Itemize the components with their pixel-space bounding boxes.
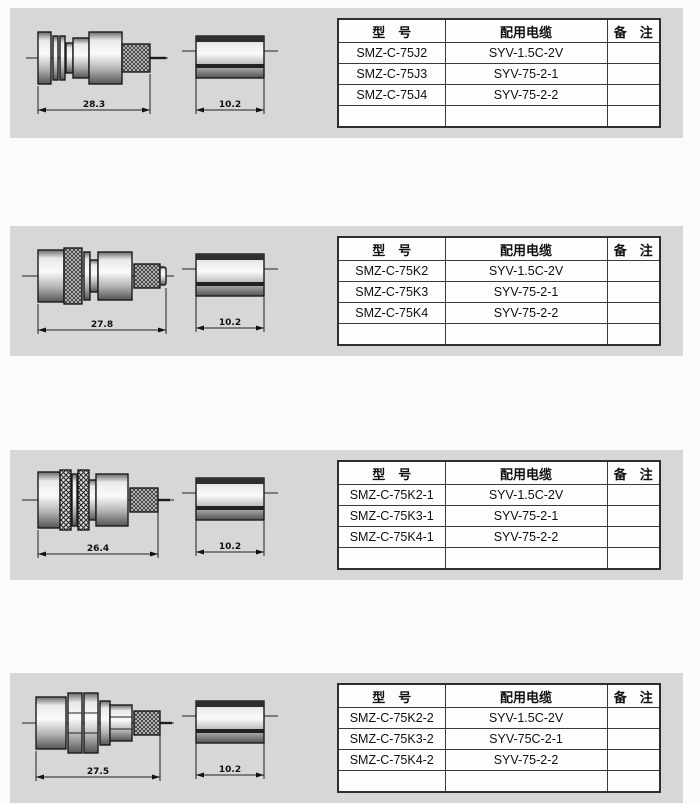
remark-header: 备 注: [607, 461, 660, 485]
table-row: SMZ-C-75K3-2 SYV-75C-2-1: [338, 729, 660, 750]
table-row: SMZ-C-75K2-2 SYV-1.5C-2V: [338, 708, 660, 729]
dimension-10-2: 10.2: [196, 296, 264, 332]
model-cell: [338, 771, 445, 793]
remark-cell: [607, 729, 660, 750]
dimension-label: 10.2: [219, 765, 241, 775]
table-row: SMZ-C-75J4 SYV-75-2-2: [338, 85, 660, 106]
table-row: SMZ-C-75K2 SYV-1.5C-2V: [338, 261, 660, 282]
spec-table-1: 型 号 配用电缆 备 注 SMZ-C-75J2 SYV-1.5C-2V SMZ-…: [337, 18, 661, 128]
dimension-label: 28.3: [83, 100, 105, 110]
remark-header: 备 注: [607, 19, 660, 43]
table-row: SMZ-C-75K4-2 SYV-75-2-2: [338, 750, 660, 771]
model-cell: SMZ-C-75K4-2: [338, 750, 445, 771]
knurl-crimp-section: [134, 264, 160, 288]
dimension-label: 27.5: [87, 767, 109, 777]
model-cell: SMZ-C-75K2: [338, 261, 445, 282]
model-header: 型 号: [338, 684, 445, 708]
dimension-label: 10.2: [219, 542, 241, 552]
cable-cell: SYV-75C-2-1: [445, 729, 607, 750]
cable-cell: SYV-75-2-1: [445, 282, 607, 303]
table-row: SMZ-C-75K4-1 SYV-75-2-2: [338, 527, 660, 548]
remark-cell: [607, 85, 660, 106]
dimension-label: 10.2: [219, 318, 241, 328]
table-row: SMZ-C-75J3 SYV-75-2-1: [338, 64, 660, 85]
remark-cell: [607, 64, 660, 85]
table-header-row: 型 号 配用电缆 备 注: [338, 19, 660, 43]
cable-cell: SYV-75-2-1: [445, 506, 607, 527]
spec-table-3: 型 号 配用电缆 备 注 SMZ-C-75K2-1 SYV-1.5C-2V SM…: [337, 460, 661, 570]
model-cell: SMZ-C-75J3: [338, 64, 445, 85]
cable-cell: SYV-75-2-2: [445, 750, 607, 771]
table-row: SMZ-C-75K3 SYV-75-2-1: [338, 282, 660, 303]
remark-cell: [607, 106, 660, 128]
datasheet-page: { "colors": { "page_bg": "#fbfbfb", "pan…: [0, 0, 700, 804]
table-row-empty: [338, 106, 660, 128]
cable-header: 配用电缆: [445, 19, 607, 43]
cable-cell: SYV-1.5C-2V: [445, 261, 607, 282]
cable-cell: SYV-75-2-2: [445, 85, 607, 106]
model-cell: SMZ-C-75K2-2: [338, 708, 445, 729]
end-cap: [160, 267, 166, 285]
table-row: SMZ-C-75K2-1 SYV-1.5C-2V: [338, 485, 660, 506]
remark-cell: [607, 303, 660, 324]
cable-cell: [445, 324, 607, 346]
cable-cell: SYV-1.5C-2V: [445, 708, 607, 729]
connector-body: [36, 693, 132, 753]
remark-cell: [607, 506, 660, 527]
dimension-label: 10.2: [219, 100, 241, 110]
section-2-panel: 27.8 10.2 型 号 配用电缆 备 注 SMZ-C-75K2 SYV-1.…: [10, 226, 683, 356]
sleeve-body: [196, 701, 264, 743]
model-cell: SMZ-C-75K3-2: [338, 729, 445, 750]
cable-cell: SYV-75-2-1: [445, 64, 607, 85]
model-cell: SMZ-C-75K4: [338, 303, 445, 324]
table-row: SMZ-C-75J2 SYV-1.5C-2V: [338, 43, 660, 64]
sleeve-drawing-3: 10.2: [180, 460, 280, 570]
connector-body: [38, 470, 128, 530]
remark-cell: [607, 548, 660, 570]
cable-header: 配用电缆: [445, 237, 607, 261]
spec-table-2: 型 号 配用电缆 备 注 SMZ-C-75K2 SYV-1.5C-2V SMZ-…: [337, 236, 661, 346]
model-cell: SMZ-C-75J2: [338, 43, 445, 64]
connector-drawing-2: 27.8: [16, 236, 180, 346]
dimension-10-2: 10.2: [196, 743, 264, 779]
remark-cell: [607, 324, 660, 346]
section-3-panel: 26.4 10.2 型 号 配用电缆 备 注 SMZ-C-75K2-1 SYV-…: [10, 450, 683, 580]
connector-drawing-4: 27.5: [16, 683, 180, 793]
remark-cell: [607, 771, 660, 793]
model-cell: [338, 548, 445, 570]
model-cell: [338, 324, 445, 346]
model-cell: SMZ-C-75K3: [338, 282, 445, 303]
table-row: SMZ-C-75K4 SYV-75-2-2: [338, 303, 660, 324]
table-header-row: 型 号 配用电缆 备 注: [338, 684, 660, 708]
remark-cell: [607, 261, 660, 282]
cable-cell: SYV-75-2-2: [445, 527, 607, 548]
table-header-row: 型 号 配用电缆 备 注: [338, 461, 660, 485]
spec-table-4: 型 号 配用电缆 备 注 SMZ-C-75K2-2 SYV-1.5C-2V SM…: [337, 683, 661, 793]
cable-cell: SYV-1.5C-2V: [445, 43, 607, 64]
knurl-crimp-section: [130, 488, 158, 512]
cable-cell: SYV-75-2-2: [445, 303, 607, 324]
sleeve-drawing-4: 10.2: [180, 683, 280, 793]
model-header: 型 号: [338, 19, 445, 43]
model-header: 型 号: [338, 461, 445, 485]
sleeve-drawing-1: 10.2: [180, 18, 280, 128]
remark-cell: [607, 750, 660, 771]
dimension-10-2: 10.2: [196, 520, 264, 556]
remark-header: 备 注: [607, 237, 660, 261]
dimension-label: 27.8: [91, 320, 113, 330]
cable-header: 配用电缆: [445, 684, 607, 708]
table-row-empty: [338, 324, 660, 346]
model-cell: SMZ-C-75K4-1: [338, 527, 445, 548]
table-row: SMZ-C-75K3-1 SYV-75-2-1: [338, 506, 660, 527]
remark-cell: [607, 527, 660, 548]
table-row-empty: [338, 771, 660, 793]
model-cell: [338, 106, 445, 128]
knurl-crimp-section: [122, 44, 150, 72]
model-cell: SMZ-C-75K2-1: [338, 485, 445, 506]
model-cell: SMZ-C-75J4: [338, 85, 445, 106]
remark-header: 备 注: [607, 684, 660, 708]
dimension-label: 26.4: [87, 544, 109, 554]
dimension-10-2: 10.2: [196, 78, 264, 114]
sleeve-drawing-2: 10.2: [180, 236, 280, 346]
cable-cell: [445, 771, 607, 793]
connector-body: [38, 32, 122, 84]
sleeve-body: [196, 478, 264, 520]
remark-cell: [607, 485, 660, 506]
sleeve-body: [196, 36, 264, 78]
cable-cell: SYV-1.5C-2V: [445, 485, 607, 506]
section-4-panel: 27.5 10.2 型 号 配用电缆 备 注 SMZ-C-75K2-2 SYV-…: [10, 673, 683, 803]
section-1-panel: 28.3 10.2 型 号 配用电缆 备 注 SMZ-C-75J2 SYV-1.…: [10, 8, 683, 138]
remark-cell: [607, 282, 660, 303]
table-header-row: 型 号 配用电缆 备 注: [338, 237, 660, 261]
model-cell: SMZ-C-75K3-1: [338, 506, 445, 527]
cable-cell: [445, 548, 607, 570]
hex-nut: [110, 705, 132, 741]
sleeve-body: [196, 254, 264, 296]
connector-drawing-1: 28.3: [16, 18, 180, 128]
knurl-crimp-section: [134, 711, 160, 735]
remark-cell: [607, 43, 660, 64]
cable-cell: [445, 106, 607, 128]
model-header: 型 号: [338, 237, 445, 261]
connector-drawing-3: 26.4: [16, 460, 180, 570]
cable-header: 配用电缆: [445, 461, 607, 485]
connector-body: [38, 248, 132, 304]
remark-cell: [607, 708, 660, 729]
table-row-empty: [338, 548, 660, 570]
